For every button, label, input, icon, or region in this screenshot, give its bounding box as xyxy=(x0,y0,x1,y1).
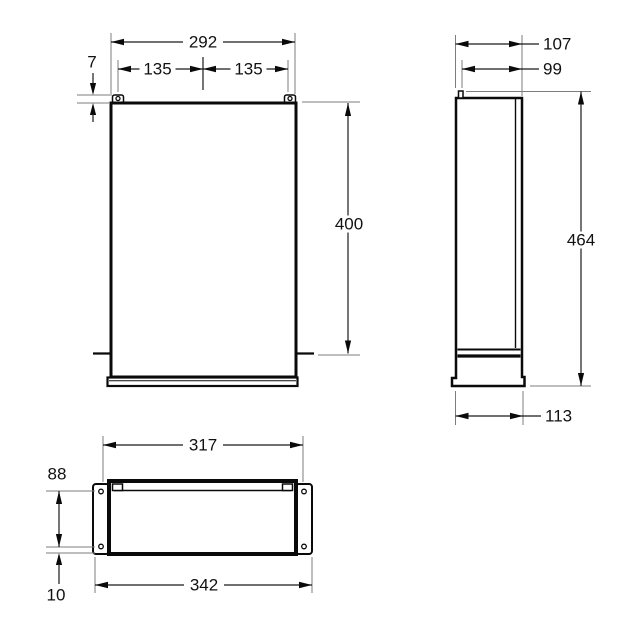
dim-label-10: 10 xyxy=(47,586,66,605)
bottom-slot-notch-left xyxy=(113,484,123,491)
arrowhead xyxy=(56,534,62,547)
arrowhead xyxy=(111,39,124,45)
dim-label-7: 7 xyxy=(87,53,96,72)
dim-label-464: 464 xyxy=(567,231,595,250)
arrowhead xyxy=(510,413,523,419)
arrowhead xyxy=(578,373,584,386)
bottom-hole-top-right xyxy=(302,489,307,494)
dim-bottom-overall-width: 342 xyxy=(95,557,312,595)
front-mount-hole-right xyxy=(288,97,292,101)
bottom-slot-notch-right xyxy=(283,484,293,491)
bottom-hole-top-left xyxy=(99,489,104,494)
arrowhead xyxy=(299,582,312,588)
dim-label-88: 88 xyxy=(48,465,67,484)
dim-side-depth-body: 99 xyxy=(462,60,562,89)
dim-front-body-height: 400 xyxy=(302,102,369,355)
dim-bottom-flange-offset: 10 xyxy=(46,553,95,605)
arrowhead xyxy=(90,83,96,95)
arrowhead xyxy=(462,66,475,72)
dim-label-99: 99 xyxy=(543,60,562,79)
dim-label-135-right: 135 xyxy=(234,60,262,79)
arrowhead xyxy=(56,553,62,565)
bottom-flange-right xyxy=(296,484,312,554)
arrowhead xyxy=(282,39,295,45)
arrowhead xyxy=(56,491,62,504)
arrowhead xyxy=(90,103,96,115)
arrowhead xyxy=(190,66,203,72)
front-body xyxy=(111,103,296,377)
dim-front-mount-offsets: 135 135 xyxy=(118,57,288,92)
arrowhead xyxy=(578,92,584,105)
dim-side-base-depth: 113 xyxy=(456,391,573,426)
front-view xyxy=(93,95,314,386)
bottom-hole-bottom-left xyxy=(99,544,104,549)
front-bottom-lip xyxy=(108,378,298,387)
dim-label-400: 400 xyxy=(335,215,363,234)
arrowhead xyxy=(203,66,216,72)
arrowhead xyxy=(118,66,131,72)
dim-bottom-opening-height: 88 xyxy=(46,465,95,548)
arrowhead xyxy=(103,442,116,448)
dim-bottom-opening-width: 317 xyxy=(103,436,303,483)
arrowhead xyxy=(345,341,351,354)
bottom-view xyxy=(93,481,312,554)
front-mount-hole-left xyxy=(116,97,120,101)
dim-label-342: 342 xyxy=(190,576,218,595)
arrowhead xyxy=(509,41,522,47)
dim-label-292: 292 xyxy=(189,33,217,52)
bottom-hole-bottom-right xyxy=(302,544,307,549)
dim-label-113: 113 xyxy=(545,407,572,426)
dimension-drawing: 292 135 135 7 400 xyxy=(0,0,640,640)
bottom-box xyxy=(109,481,296,554)
side-mount-tab xyxy=(459,91,464,98)
arrowhead xyxy=(456,413,469,419)
dim-label-107: 107 xyxy=(543,35,571,54)
dim-front-tab-height: 7 xyxy=(77,53,112,123)
arrowhead xyxy=(345,103,351,116)
arrowhead xyxy=(509,66,522,72)
arrowhead xyxy=(95,582,108,588)
arrowhead xyxy=(275,66,288,72)
side-body xyxy=(452,98,525,386)
dim-label-135-left: 135 xyxy=(143,60,171,79)
arrowhead xyxy=(456,41,469,47)
side-view xyxy=(452,91,525,386)
drawing-canvas: 292 135 135 7 400 xyxy=(0,0,640,640)
arrowhead xyxy=(290,442,303,448)
dim-label-317: 317 xyxy=(189,436,217,455)
bottom-flange-left xyxy=(93,484,109,554)
